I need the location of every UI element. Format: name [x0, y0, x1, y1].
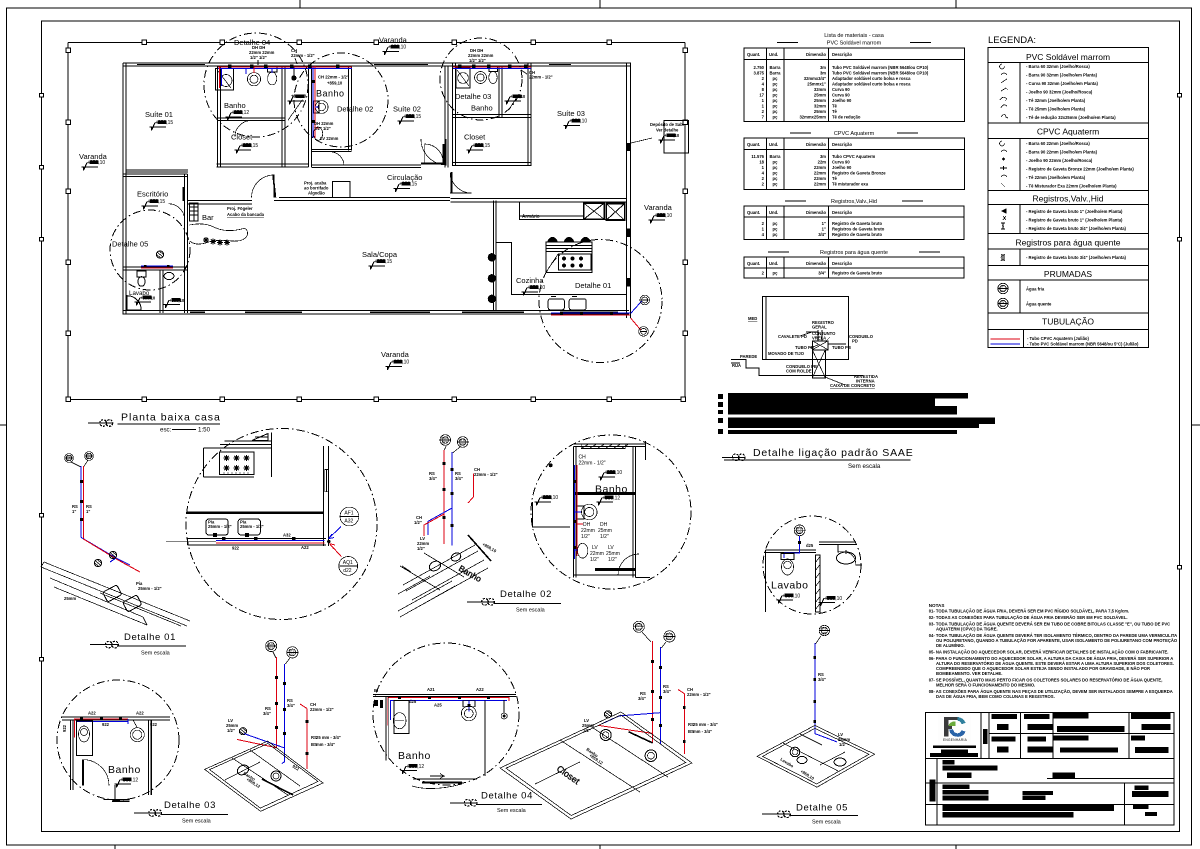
svg-text:Detalhe 02: Detalhe 02 [500, 589, 552, 600]
svg-text:mm - 3/4": mm - 3/4" [316, 742, 335, 747]
svg-text:32mmx3/4": 32mmx3/4" [804, 76, 826, 81]
svg-text:3/4": 3/4" [818, 232, 826, 237]
svg-text:Ver detalhe: Ver detalhe [656, 128, 679, 133]
svg-text:32mmx25mm: 32mmx25mm [799, 115, 826, 120]
svg-text:+858,10: +858,10 [87, 160, 105, 166]
svg-text:Tê de redução: Tê de redução [832, 115, 861, 120]
svg-text:Closet: Closet [464, 133, 486, 142]
svg-text:Detalhe 03: Detalhe 03 [455, 92, 491, 101]
svg-text:Lavabo: Lavabo [771, 580, 808, 592]
svg-text:d32: d32 [1000, 289, 1005, 293]
svg-text:Banho: Banho [471, 104, 493, 113]
svg-text:1/2": 1/2" [590, 557, 599, 563]
svg-text:+858,12: +858,12 [602, 496, 620, 502]
svg-text:Dimensão: Dimensão [806, 210, 826, 215]
svg-text:1/2": 1/2" [417, 546, 425, 551]
svg-text:A22: A22 [301, 545, 309, 550]
svg-text:d22: d22 [343, 568, 352, 574]
svg-text:25 mm - 3/4": 25 mm - 3/4" [693, 722, 718, 727]
svg-text:3/4": 3/4" [818, 271, 826, 276]
svg-text:Sem escala: Sem escala [516, 608, 546, 614]
svg-text:TUBO PB: TUBO PB [832, 345, 851, 350]
svg-text:Registro de Gaveta bruto: Registro de Gaveta bruto [832, 221, 882, 226]
svg-text:22mm - 1/2": 22mm - 1/2" [310, 707, 334, 712]
svg-text:1/2": 1/2" [414, 520, 422, 525]
svg-text:A32: A32 [283, 533, 291, 538]
svg-text:PVC Soldável marrom: PVC Soldável marrom [827, 41, 882, 47]
svg-text:1/2": 1/2" [227, 728, 235, 733]
svg-text:Banho: Banho [224, 101, 246, 110]
svg-text:DAS DE ÁGUA FRIA, BEM COMO COL: DAS DE ÁGUA FRIA, BEM COMO COLUNAS E REG… [936, 694, 1055, 699]
svg-text:+858,10: +858,10 [664, 133, 680, 138]
svg-text:25mmx1": 25mmx1" [807, 82, 826, 87]
svg-text:+859,12: +859,12 [406, 764, 424, 770]
svg-text:PVC Soldável marrom: PVC Soldável marrom [1026, 52, 1110, 62]
svg-text:1": 1" [822, 221, 826, 226]
svg-text:- Joelho 90 22mm (Joelho/Rosca: - Joelho 90 22mm (Joelho/Rosca) [1026, 158, 1093, 163]
svg-text:Barra: Barra [770, 154, 782, 159]
svg-text:Tubo CPVC Aquaterm: Tubo CPVC Aquaterm [832, 154, 876, 159]
svg-text:25mm: 25mm [814, 93, 826, 98]
svg-text:922: 922 [232, 546, 240, 551]
svg-text:+858,15: +858,15 [472, 143, 490, 149]
svg-text:02- TODAS AS CONEXÕES PARA TUB: 02- TODAS AS CONEXÕES PARA TUBULAÇÃO DE … [929, 615, 1128, 620]
svg-text:pç: pç [773, 160, 779, 165]
svg-text:AF3: AF3 [459, 438, 465, 442]
svg-text:- Registro de Gaveta bruto 3/4: - Registro de Gaveta bruto 3/4" (Joelho/… [1026, 226, 1127, 231]
svg-text:d25: d25 [796, 531, 802, 535]
svg-text:3/4": 3/4" [429, 476, 437, 481]
svg-text:1": 1" [86, 509, 90, 514]
svg-text:Planta baixa casa: Planta baixa casa [121, 412, 221, 424]
svg-text:- Tê Misturador Exa 22mm (Joel: - Tê Misturador Exa 22mm (Joelho/em Plan… [1026, 184, 1117, 189]
svg-text:d22: d22 [1000, 304, 1005, 308]
svg-text:- Tê de redução 32x25mm (Joelh: - Tê de redução 32x25mm (Joelho/em Plant… [1026, 115, 1116, 120]
svg-text:LV 22mm: LV 22mm [320, 136, 339, 141]
svg-text:VRELA: VRELA [812, 336, 826, 341]
svg-text:22mm: 22mm [814, 165, 826, 170]
svg-text:Detalhe 04: Detalhe 04 [234, 38, 270, 47]
svg-text:22mm: 22mm [814, 176, 826, 181]
svg-text:ENGENHARIA: ENGENHARIA [943, 738, 968, 742]
svg-text:+858,10: +858,10 [569, 119, 587, 125]
svg-text:3m: 3m [820, 71, 826, 76]
svg-text:32mm: 32mm [814, 104, 826, 109]
svg-text:A22: A22 [136, 711, 144, 716]
svg-text:pç: pç [773, 87, 779, 92]
svg-text:1/2" 1/2": 1/2" 1/2" [250, 55, 267, 60]
svg-text:22mm - 1/2": 22mm - 1/2" [291, 53, 315, 58]
svg-text:AQ2: AQ2 [267, 642, 274, 646]
svg-text:25mm: 25mm [814, 109, 826, 114]
svg-text:22mm - 1/2": 22mm - 1/2" [579, 461, 606, 467]
svg-text:Dimensão: Dimensão [806, 52, 826, 57]
svg-text:- Tê 32mm (Joelho/em Planta): - Tê 32mm (Joelho/em Planta) [1026, 98, 1086, 103]
svg-text:Quant.: Quant. [747, 52, 760, 57]
svg-text:Quant.: Quant. [747, 261, 760, 266]
svg-text:1/2": 1/2" [600, 534, 609, 540]
svg-text:BI: BI [374, 688, 378, 693]
svg-text:PD: PD [852, 339, 858, 344]
svg-text:MELHOR SERÁ O FUNCIONAMENTO DO: MELHOR SERÁ O FUNCIONAMENTO DO MESMO. [936, 683, 1035, 688]
svg-text:d22: d22 [66, 458, 71, 462]
svg-text:pç: pç [773, 227, 779, 232]
svg-text:AF8: AF8 [796, 526, 802, 530]
svg-text:Banho: Banho [398, 750, 431, 762]
svg-text:- Tê 25mm (Joelho/em Planta): - Tê 25mm (Joelho/em Planta) [1026, 107, 1086, 112]
svg-text:Detalhe 03: Detalhe 03 [164, 800, 216, 811]
svg-text:Sem escala: Sem escala [812, 820, 842, 826]
svg-text:Acabo da bancada: Acabo da bancada [227, 212, 265, 217]
svg-text:+858,10: +858,10 [388, 45, 406, 51]
svg-text:+859,10: +859,10 [169, 298, 185, 303]
svg-text:esc:: esc: [160, 427, 172, 434]
svg-text:pç: pç [773, 98, 779, 103]
svg-text:Sem escala: Sem escala [182, 819, 212, 825]
svg-text:Und.: Und. [769, 210, 778, 215]
svg-text:25mm - 1/2": 25mm - 1/2" [138, 586, 162, 591]
svg-text:MOVADO DE TIJO: MOVADO DE TIJO [768, 351, 805, 356]
svg-text:22m: 22m [818, 160, 827, 165]
svg-text:TUBULAÇÃO: TUBULAÇÃO [1042, 317, 1094, 327]
svg-text:+858,10: +858,10 [654, 213, 672, 219]
svg-text:RUA: RUA [732, 363, 741, 368]
svg-text:d32: d32 [86, 456, 91, 460]
svg-text:pç: pç [773, 115, 779, 120]
svg-text:LEGENDA:: LEGENDA: [988, 35, 1036, 46]
svg-text:+858,12: +858,12 [231, 110, 249, 116]
svg-text:Sem escala: Sem escala [141, 651, 171, 657]
svg-text:- Registro de Gaveta Bronze 22: - Registro de Gaveta Bronze 22mm (Joelho… [1026, 167, 1134, 172]
svg-text:A25: A25 [434, 703, 442, 708]
svg-text:Registro de Gaveta bruto: Registro de Gaveta bruto [832, 232, 882, 237]
svg-text:+859,12: +859,12 [120, 778, 138, 784]
svg-text:Banho: Banho [108, 764, 141, 776]
svg-text:25mm - 1/2": 25mm - 1/2" [240, 524, 264, 529]
svg-text:Descrição: Descrição [832, 210, 852, 215]
svg-text:BOMBEAMENTO. VER DETALHE.: BOMBEAMENTO. VER DETALHE. [936, 671, 1002, 676]
svg-text:1/2": 1/2" [581, 534, 590, 540]
svg-text:- Tubo CPVC Aquaterm (Julião): - Tubo CPVC Aquaterm (Julião) [1027, 336, 1089, 341]
svg-text:3.875: 3.875 [754, 71, 765, 76]
svg-text:25mm - 1/2": 25mm - 1/2" [208, 524, 232, 529]
svg-text:Dimensão: Dimensão [806, 142, 826, 147]
svg-text:Registros de Gaveta bruto: Registros de Gaveta bruto [832, 227, 885, 232]
svg-text:Banho: Banho [316, 89, 345, 99]
svg-text:pç: pç [773, 232, 779, 237]
svg-text:Detalhe 05: Detalhe 05 [796, 803, 848, 814]
svg-text:AQUATERM (CPVC) DA TIGRE.: AQUATERM (CPVC) DA TIGRE. [936, 627, 998, 632]
svg-text:922: 922 [102, 722, 110, 727]
svg-text:+858,15: +858,15 [403, 114, 421, 120]
svg-text:Detalhe 04: Detalhe 04 [481, 791, 533, 802]
svg-text:Sala/Copa: Sala/Copa [362, 250, 398, 259]
svg-text:Registros,Valv.,Hid: Registros,Valv.,Hid [1032, 194, 1103, 204]
svg-text:+858,10: +858,10 [291, 94, 307, 99]
svg-text:A21: A21 [427, 687, 435, 692]
svg-text:Curva 90: Curva 90 [832, 93, 850, 98]
svg-text:+858,15: +858,15 [147, 199, 165, 205]
svg-text:d25: d25 [409, 699, 417, 704]
svg-text:pç: pç [773, 109, 779, 114]
svg-text:1/2" 1/2": 1/2" 1/2" [314, 126, 331, 131]
svg-text:Tê misturador exa: Tê misturador exa [832, 182, 869, 187]
svg-text:1/2" 1/2": 1/2" 1/2" [469, 58, 486, 63]
svg-text:22mm: 22mm [814, 171, 826, 176]
svg-text:d32: d32 [459, 443, 465, 447]
svg-text:Adaptador soldável curto bolsa: Adaptador soldável curto bolsa e rosca [832, 76, 911, 81]
svg-text:Tê: Tê [832, 109, 838, 114]
svg-text:AQ1: AQ1 [343, 560, 353, 566]
svg-text:1": 1" [822, 227, 826, 232]
svg-text:Detalhe 01: Detalhe 01 [124, 632, 176, 643]
svg-text:Quant.: Quant. [747, 210, 760, 215]
svg-text:22mm - 1/2": 22mm - 1/2" [474, 472, 498, 477]
svg-text:- Registro de Gaveta bruto 3/4: - Registro de Gaveta bruto 3/4" (Joelho/… [1026, 255, 1127, 260]
svg-text:A32: A32 [344, 519, 353, 525]
svg-text:- Barra 60 32mm (Joelho/Rosca): - Barra 60 32mm (Joelho/Rosca) [1026, 64, 1090, 69]
svg-text:Descrição: Descrição [832, 52, 852, 57]
svg-text:Proj. Fögeler: Proj. Fögeler [227, 206, 253, 211]
svg-text:Detalhe 01: Detalhe 01 [575, 281, 611, 290]
svg-text:pç: pç [773, 165, 779, 170]
svg-text:Tubo PVC Soldável marrom (NBR: Tubo PVC Soldável marrom (NBR 5648/ou CP… [832, 65, 929, 70]
svg-text:d25: d25 [821, 631, 827, 635]
svg-text:+859,10: +859,10 [824, 596, 842, 602]
svg-text:+858,15: +858,15 [399, 182, 417, 188]
svg-text:Varanda: Varanda [379, 36, 408, 45]
svg-text:11.576: 11.576 [751, 154, 764, 159]
svg-text:Descrição: Descrição [832, 142, 852, 147]
svg-text:- Barra 90 32mm (Joelho/em Pla: - Barra 90 32mm (Joelho/em Planta) [1026, 73, 1098, 78]
svg-text:pç: pç [773, 182, 779, 187]
svg-text:Depósito de Sab.: Depósito de Sab. [650, 122, 684, 127]
svg-text:GERAL: GERAL [812, 325, 827, 330]
svg-text:AF1: AF1 [344, 511, 353, 517]
svg-text:1": 1" [72, 509, 76, 514]
svg-text:AQ4: AQ4 [635, 623, 642, 627]
svg-text:Suíte 03: Suíte 03 [557, 109, 585, 118]
svg-text:18: 18 [759, 160, 764, 165]
svg-text:A22: A22 [476, 687, 484, 692]
svg-text:1:50: 1:50 [198, 427, 211, 434]
svg-text:d22: d22 [635, 628, 641, 632]
svg-text:CAVALETE PD: CAVALETE PD [778, 334, 807, 339]
svg-text:922: 922 [62, 724, 67, 732]
svg-text:Adaptador soldável curto bolsa: Adaptador soldável curto bolsa e rosca [832, 82, 911, 87]
svg-text:PRUMADAS: PRUMADAS [1044, 269, 1093, 279]
svg-text:- Joelho 90 32mm (Joelho/Rosca: - Joelho 90 32mm (Joelho/Rosca) [1026, 90, 1093, 95]
svg-text:+859,10: +859,10 [140, 296, 156, 301]
svg-text:AF8: AF8 [820, 627, 826, 631]
svg-text:Varanda: Varanda [644, 203, 673, 212]
svg-text:pç: pç [773, 82, 779, 87]
svg-text:CPVC Aquaterm: CPVC Aquaterm [1037, 127, 1099, 137]
svg-text:OU POLIURETANO, QUANDO A TUBUL: OU POLIURETANO, QUANDO A TUBULAÇÃO FOR A… [936, 638, 1178, 643]
svg-text:AF: AF [1000, 285, 1004, 289]
svg-text:Registros para água quente: Registros para água quente [820, 250, 888, 256]
svg-text:+859,10: +859,10 [327, 81, 343, 86]
svg-text:Detalhe 02: Detalhe 02 [337, 105, 373, 114]
svg-text:+858,15: +858,15 [240, 143, 258, 149]
svg-text:d32: d32 [666, 637, 672, 641]
svg-text:05- NA INSTALAÇÃO DO AQUECEDOR: 05- NA INSTALAÇÃO DO AQUECEDOR SOLAR, DE… [929, 650, 1169, 655]
svg-text:Registros,Valv.,Hid: Registros,Valv.,Hid [831, 199, 877, 205]
svg-text:Água quente: Água quente [1026, 302, 1052, 307]
svg-text:Joelho 90: Joelho 90 [832, 165, 852, 170]
svg-text:AF4: AF4 [665, 632, 671, 636]
svg-text:17: 17 [759, 93, 764, 98]
svg-text:Curva 90: Curva 90 [832, 87, 850, 92]
svg-text:d32: d32 [289, 653, 295, 657]
svg-text:Tubo PVC Soldável marrom (NBR: Tubo PVC Soldável marrom (NBR 5648/ou CP… [832, 71, 929, 76]
svg-text:Sem escala: Sem escala [848, 463, 881, 470]
svg-text:+858,10: +858,10 [391, 360, 409, 366]
svg-text:Registro de Gaveta Bronze: Registro de Gaveta Bronze [832, 171, 886, 176]
svg-text:AQ3: AQ3 [441, 436, 448, 440]
svg-text:PAREDE: PAREDE [740, 354, 757, 359]
svg-text:- Barra 90 22mm (Joelho/em Pla: - Barra 90 22mm (Joelho/em Planta) [1026, 150, 1098, 155]
svg-text:CPVC Aquaterm: CPVC Aquaterm [834, 131, 875, 137]
svg-text:Lista de materiais - casa: Lista de materiais - casa [824, 33, 885, 39]
svg-text:AF2: AF2 [288, 648, 294, 652]
svg-text:Registros para água quente: Registros para água quente [1016, 238, 1121, 248]
svg-text:Tê: Tê [832, 104, 838, 109]
svg-text:3m: 3m [820, 154, 826, 159]
svg-text:01- TODA TUBULAÇÃO DE ÁGUA FRI: 01- TODA TUBULAÇÃO DE ÁGUA FRIA, DEVERÁ … [929, 609, 1129, 614]
svg-text:CAIXA DE CONCRETO: CAIXA DE CONCRETO [830, 383, 876, 388]
svg-text:Sem escala: Sem escala [497, 808, 527, 814]
svg-text:Closet: Closet [231, 133, 253, 142]
svg-text:Curva 90: Curva 90 [832, 160, 850, 165]
svg-text:Cozinha: Cozinha [516, 276, 544, 285]
svg-text:22mm: 22mm [814, 182, 826, 187]
svg-text:pç: pç [773, 171, 779, 176]
svg-text:3/4": 3/4" [287, 703, 295, 708]
svg-text:+859,10: +859,10 [540, 495, 558, 501]
svg-text:DE ALUMÍNIO.: DE ALUMÍNIO. [936, 643, 965, 648]
svg-text:pç: pç [773, 221, 779, 226]
svg-text:22mm - 1/2": 22mm - 1/2" [529, 75, 553, 80]
svg-text:Detalhe 05: Detalhe 05 [112, 240, 148, 249]
svg-text:+858,15: +858,15 [374, 259, 392, 265]
svg-text:Und.: Und. [769, 261, 778, 266]
svg-text:Suíte 02: Suíte 02 [393, 105, 421, 114]
svg-text:2.750: 2.750 [754, 65, 765, 70]
svg-text:- Registro de Gaveta bruto 1": - Registro de Gaveta bruto 1" (Joelho/em… [1026, 218, 1123, 223]
svg-text:3/4": 3/4" [818, 677, 826, 682]
svg-text:+858,15: +858,15 [155, 120, 173, 126]
svg-text:pç: pç [773, 93, 779, 98]
svg-text:MED: MED [748, 316, 757, 321]
svg-text:d22: d22 [442, 441, 448, 445]
svg-text:32mm: 32mm [814, 87, 826, 92]
svg-text:Und.: Und. [769, 52, 778, 57]
svg-text:+859,10: +859,10 [782, 594, 800, 600]
svg-text:Algodão: Algodão [308, 191, 325, 196]
svg-text:Banho: Banho [595, 484, 628, 496]
svg-text:3/4": 3/4" [663, 689, 671, 694]
svg-text:Barra: Barra [770, 71, 782, 76]
svg-text:Und.: Und. [769, 142, 778, 147]
svg-text:AQ: AQ [1000, 300, 1005, 304]
svg-text:Descrição: Descrição [832, 261, 852, 266]
svg-text:- Registro de Gaveta bruto 1": - Registro de Gaveta bruto 1" (Joelho/em… [1026, 209, 1123, 214]
svg-text:Bar: Bar [202, 213, 214, 222]
svg-text:25mm: 25mm [814, 98, 826, 103]
svg-text:mm - 3/4": mm - 3/4" [693, 729, 712, 734]
svg-text:22mm - 1/2": 22mm - 1/2" [687, 692, 711, 697]
svg-text:3/4": 3/4" [263, 711, 271, 716]
svg-text:- Barra 60 22mm (Joelho/Rosca): - Barra 60 22mm (Joelho/Rosca) [1026, 141, 1090, 146]
svg-text:+858,10: +858,10 [527, 285, 545, 291]
svg-text:25mm: 25mm [64, 596, 76, 601]
svg-text:Armário: Armário [522, 214, 540, 220]
svg-text:- Tê 22mm (Joelho/em Planta): - Tê 22mm (Joelho/em Planta) [1026, 175, 1086, 180]
svg-text:+858,10: +858,10 [604, 470, 622, 476]
svg-text:Tê: Tê [832, 176, 838, 181]
svg-text:Varanda: Varanda [381, 350, 410, 359]
svg-text:3/4": 3/4" [638, 696, 646, 701]
svg-text:NOTAS: NOTAS [929, 603, 945, 608]
svg-text:Suíte 01: Suíte 01 [145, 110, 173, 119]
svg-text:3/4": 3/4" [455, 476, 463, 481]
svg-text:A22: A22 [88, 711, 96, 716]
svg-text:pç: pç [773, 104, 779, 109]
svg-text:d22: d22 [268, 647, 274, 651]
svg-text:Detalhe ligação padrão SAAE: Detalhe ligação padrão SAAE [753, 447, 914, 459]
svg-text:25 mm - 3/4": 25 mm - 3/4" [316, 735, 341, 740]
svg-text:Dimensão: Dimensão [806, 261, 826, 266]
svg-text:Joelho 90: Joelho 90 [832, 98, 852, 103]
svg-text:pç: pç [773, 176, 779, 181]
svg-text:Barra: Barra [770, 65, 782, 70]
svg-text:Quant.: Quant. [747, 142, 760, 147]
svg-text:1/2": 1/2" [608, 557, 617, 563]
svg-text:COM ROLDE: COM ROLDE [786, 369, 812, 374]
svg-text:- Tubo PVC Soldável marrom (NB: - Tubo PVC Soldável marrom (NBR 5648/ou … [1027, 342, 1139, 347]
svg-text:CH 22mm - 1/2": CH 22mm - 1/2" [318, 75, 349, 80]
svg-text:pç: pç [773, 76, 779, 81]
svg-text:pç: pç [773, 271, 779, 276]
svg-text:Escritório: Escritório [137, 190, 168, 199]
svg-text:Água fria: Água fria [1026, 287, 1045, 292]
svg-text:Registro de Gaveta bruto: Registro de Gaveta bruto [832, 271, 882, 276]
svg-text:3m: 3m [820, 65, 826, 70]
svg-text:- Curva 90 32mm (Joelho/em Pla: - Curva 90 32mm (Joelho/em Planta) [1026, 81, 1099, 86]
svg-text:d25: d25 [806, 543, 814, 548]
